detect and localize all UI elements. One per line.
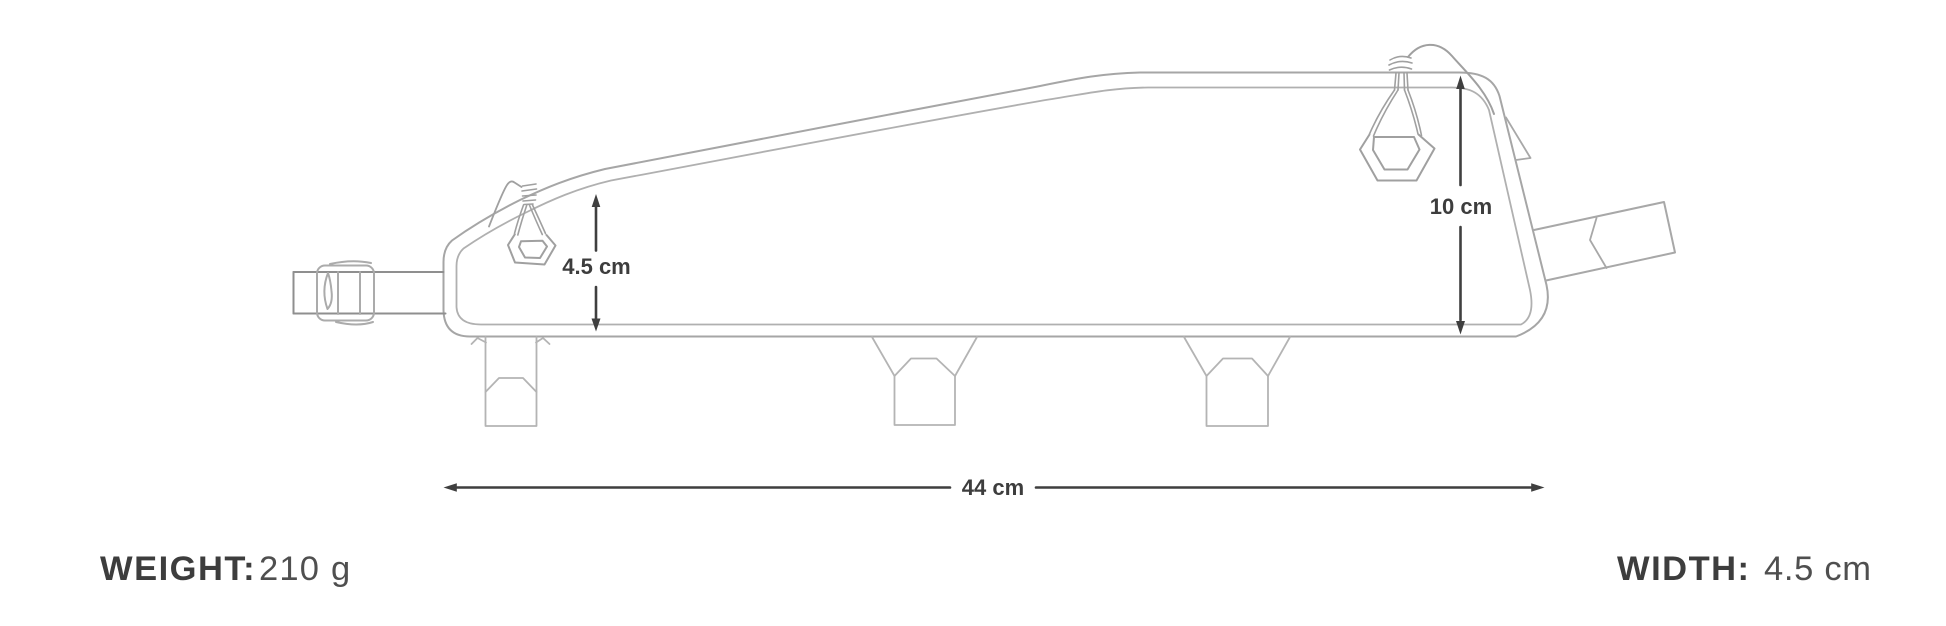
svg-text:WEIGHT:: WEIGHT: — [100, 550, 256, 588]
svg-text:WIDTH:: WIDTH: — [1617, 550, 1751, 588]
svg-text:4.5 cm: 4.5 cm — [1764, 550, 1872, 588]
svg-text:4.5 cm: 4.5 cm — [562, 254, 631, 279]
svg-text:44 cm: 44 cm — [962, 475, 1024, 500]
svg-text:210 g: 210 g — [259, 550, 351, 588]
svg-text:10 cm: 10 cm — [1430, 194, 1492, 219]
